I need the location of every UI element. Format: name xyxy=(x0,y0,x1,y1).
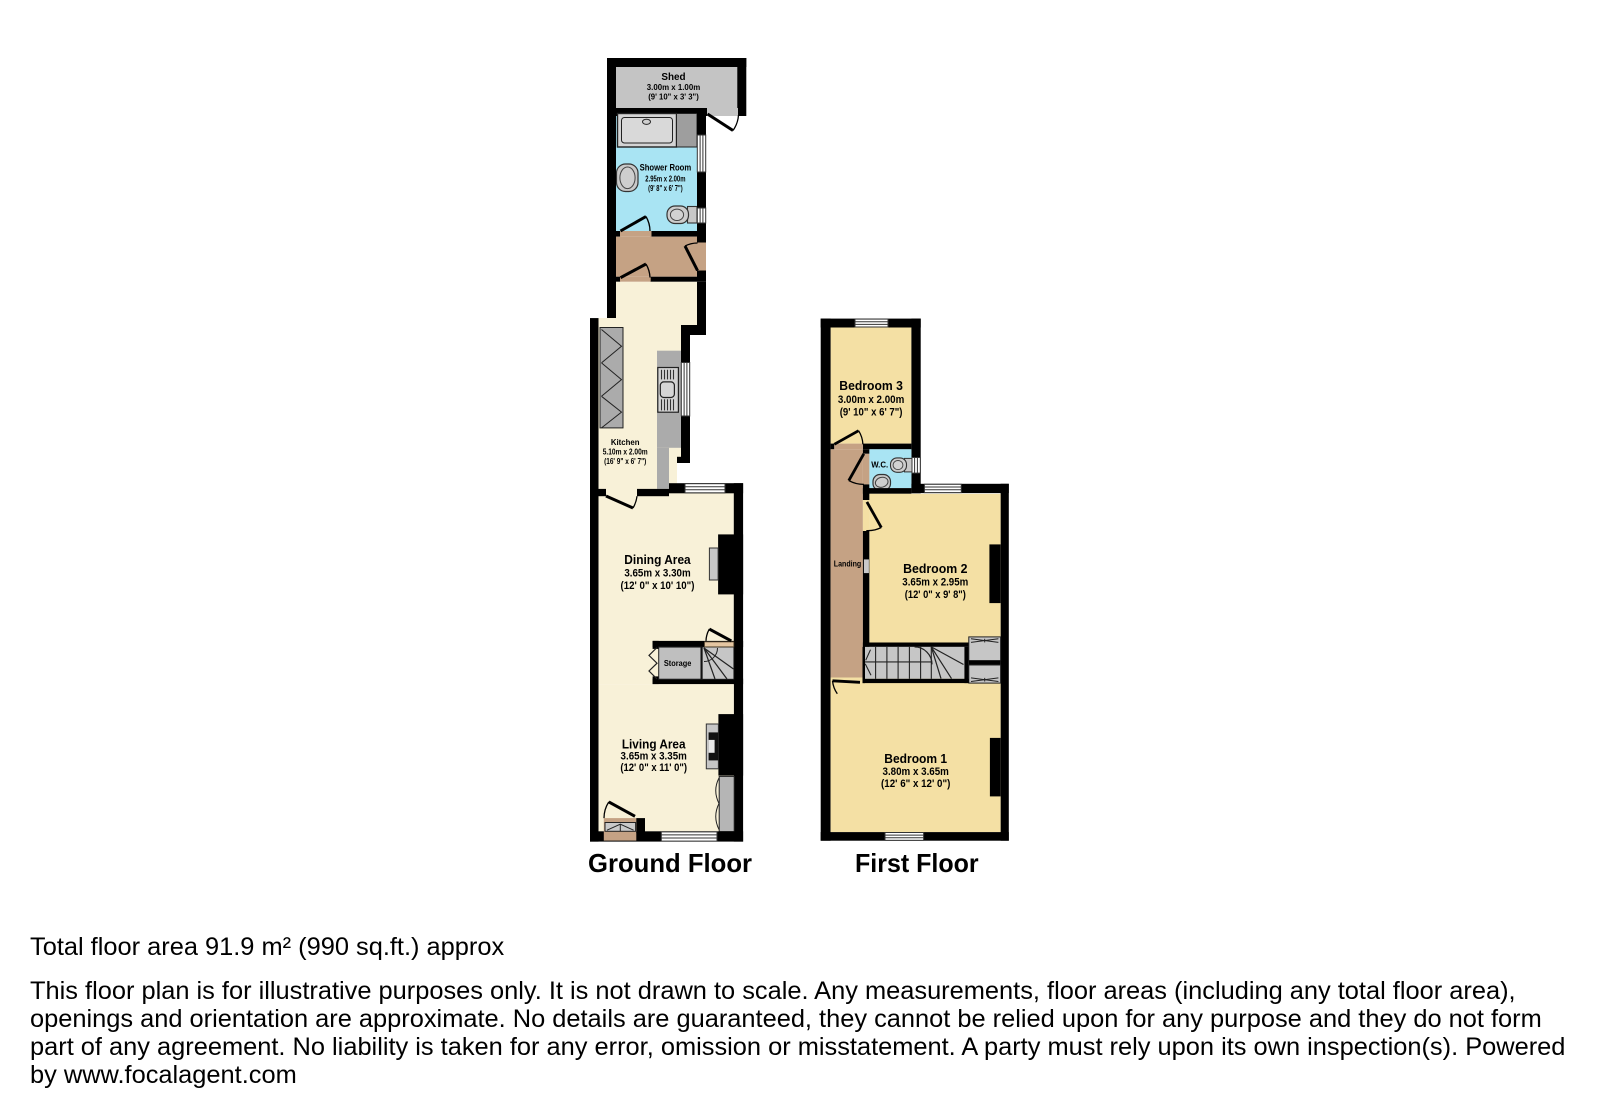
svg-text:by www.focalagent.com: by www.focalagent.com xyxy=(30,1061,297,1089)
svg-text:Bedroom 2: Bedroom 2 xyxy=(903,561,967,576)
svg-text:Shower Room: Shower Room xyxy=(640,162,692,172)
svg-text:Kitchen: Kitchen xyxy=(611,438,640,447)
svg-text:3.80m x 3.65m: 3.80m x 3.65m xyxy=(883,766,950,778)
svg-text:Total floor area 91.9 m² (990: Total floor area 91.9 m² (990 sq.ft.) ap… xyxy=(30,933,504,961)
svg-text:part of any agreement. No liab: part of any agreement. No liability is t… xyxy=(30,1033,1565,1061)
svg-text:(12' 6" x 12' 0"): (12' 6" x 12' 0") xyxy=(881,778,951,790)
svg-text:(12' 0" x 10' 10"): (12' 0" x 10' 10") xyxy=(621,580,695,592)
svg-text:Living Area: Living Area xyxy=(622,737,686,752)
svg-text:openings and orientation are a: openings and orientation are approximate… xyxy=(30,1005,1542,1033)
svg-text:(12' 0" x 11' 0"): (12' 0" x 11' 0") xyxy=(620,762,687,774)
svg-text:3.00m x 2.00m: 3.00m x 2.00m xyxy=(838,394,905,406)
svg-text:(16' 9" x 6' 7"): (16' 9" x 6' 7") xyxy=(604,457,646,466)
svg-text:3.65m x 3.35m: 3.65m x 3.35m xyxy=(621,751,687,763)
svg-text:(12' 0" x 9' 8"): (12' 0" x 9' 8") xyxy=(905,589,966,601)
svg-text:3.65m x 3.30m: 3.65m x 3.30m xyxy=(624,568,690,580)
svg-text:(9' 10" x 3' 3"): (9' 10" x 3' 3") xyxy=(648,92,699,102)
svg-text:(9' 10" x 6' 7"): (9' 10" x 6' 7") xyxy=(840,407,903,419)
svg-text:W.C.: W.C. xyxy=(871,461,888,470)
svg-text:5.10m x 2.00m: 5.10m x 2.00m xyxy=(603,448,648,457)
svg-text:Bedroom 1: Bedroom 1 xyxy=(884,751,947,766)
svg-text:(9' 8" x 6' 7"): (9' 8" x 6' 7") xyxy=(648,184,683,193)
svg-text:Dining Area: Dining Area xyxy=(624,552,691,567)
svg-text:First Floor: First Floor xyxy=(855,850,979,878)
svg-text:Landing: Landing xyxy=(834,559,862,568)
svg-text:3.65m x 2.95m: 3.65m x 2.95m xyxy=(902,577,968,589)
svg-text:Bedroom 3: Bedroom 3 xyxy=(839,378,903,393)
svg-text:Storage: Storage xyxy=(664,659,692,668)
svg-text:This floor plan is for illustr: This floor plan is for illustrative purp… xyxy=(30,977,1516,1005)
svg-text:Ground Floor: Ground Floor xyxy=(588,850,752,878)
svg-text:2.95m x 2.00m: 2.95m x 2.00m xyxy=(645,175,685,184)
